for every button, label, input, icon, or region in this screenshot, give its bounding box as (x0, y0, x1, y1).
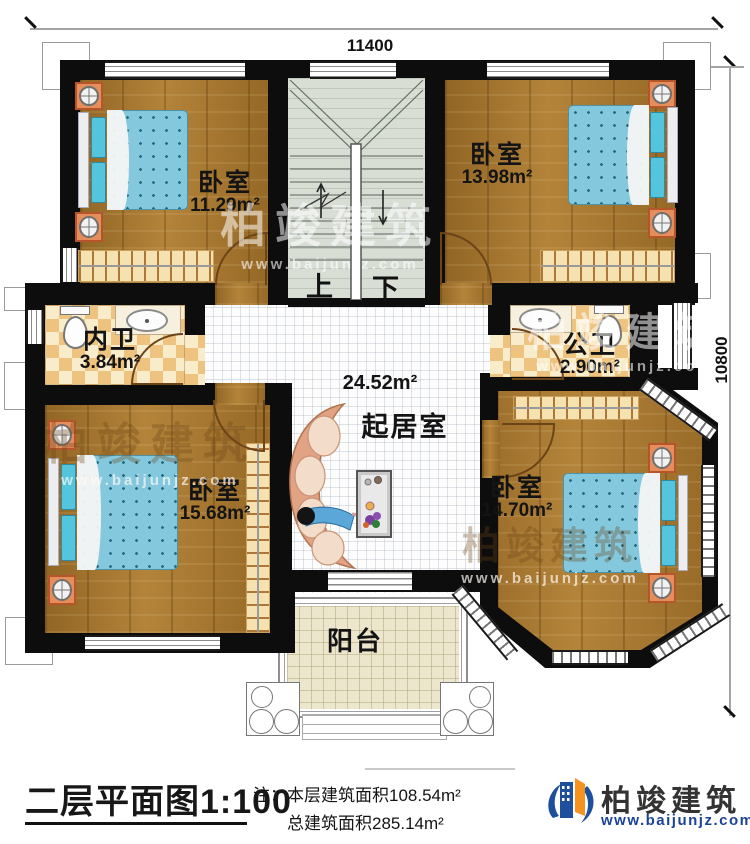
door-leaf (263, 400, 265, 452)
floor-plan-canvas: 11400 10800 (0, 0, 750, 844)
door-opening (482, 420, 500, 478)
wardrobe (513, 396, 639, 420)
area-note: 注：本层建筑面积108.54m² 总建筑面积285.14m² (253, 781, 461, 834)
nightstand (648, 208, 676, 238)
note-separator (365, 768, 515, 770)
coffee-table (356, 470, 392, 538)
note-line2: 总建筑面积285.14m² (253, 809, 461, 834)
door-opening (490, 335, 510, 377)
stair-up-label: 上 (306, 265, 333, 304)
pilaster (4, 362, 26, 410)
nightstand (48, 420, 76, 450)
window (487, 61, 609, 79)
wall (25, 383, 45, 653)
title-text: 二层平面图 (25, 783, 200, 821)
window (310, 61, 396, 79)
dimension-line-top (30, 28, 718, 30)
dimension-right-value: 10800 (712, 318, 732, 402)
toilet-tank (594, 305, 624, 314)
bay-window (701, 465, 716, 577)
pilaster (4, 287, 26, 311)
wardrobe (78, 250, 214, 282)
wall (675, 60, 695, 305)
window (85, 635, 220, 651)
wall (185, 283, 205, 335)
door-leaf (512, 378, 564, 380)
nightstand (75, 212, 103, 242)
dimension-tick (711, 16, 724, 29)
door-opening (440, 283, 492, 305)
room-label-bedroom-bottom-left: 卧室15.68m² (150, 478, 280, 524)
balcony-floor (287, 606, 459, 709)
room-label-public-bathroom: 公卫2.90m² (530, 332, 650, 378)
sink (519, 308, 561, 331)
room-label-bedroom-top-left: 卧室11.29m² (160, 170, 290, 216)
balcony-column-right (440, 682, 494, 736)
room-label-bedroom-top-right: 卧室13.98m² (432, 142, 562, 188)
drawing-title: 二层平面图1:100 (25, 774, 292, 823)
door-leaf (440, 232, 442, 285)
dimension-tick (24, 16, 37, 29)
note-prefix: 注： (253, 786, 287, 805)
nightstand (648, 573, 676, 603)
dimension-top-value: 11400 (330, 36, 410, 56)
bed (568, 105, 678, 205)
window (672, 303, 692, 369)
toilet-tank (60, 306, 90, 315)
window (26, 310, 44, 344)
stair-down-label: 下 (372, 267, 399, 306)
window (105, 61, 245, 79)
window (61, 248, 79, 282)
balcony-column-left (246, 682, 300, 736)
room-label-balcony: 阳台 (300, 628, 410, 655)
wardrobe (540, 250, 675, 282)
balcony-door-threshold (328, 572, 412, 590)
company-logo-icon (543, 770, 599, 832)
title-underline (25, 822, 247, 825)
nightstand (48, 575, 76, 605)
wall (653, 283, 698, 303)
balcony-steps (302, 714, 447, 740)
door-leaf (131, 383, 183, 385)
room-label-living-name: 起居室 (340, 413, 470, 441)
nightstand (648, 80, 676, 108)
door-leaf (265, 232, 267, 285)
bay-window (552, 650, 628, 665)
room-label-inner-bathroom: 内卫3.84m² (50, 327, 170, 373)
note-line1: 本层建筑面积108.54m² (287, 786, 461, 805)
company-logo-url: www.baijunjz.com (601, 812, 750, 829)
room-label-bedroom-bottom-right: 卧室14.70m² (452, 475, 582, 521)
nightstand (75, 82, 103, 110)
nightstand (648, 443, 676, 473)
door-leaf (502, 423, 555, 425)
room-label-living-area: 24.52m² (315, 373, 445, 394)
door-opening (215, 283, 268, 305)
wardrobe (246, 443, 270, 633)
door-opening (185, 335, 205, 385)
